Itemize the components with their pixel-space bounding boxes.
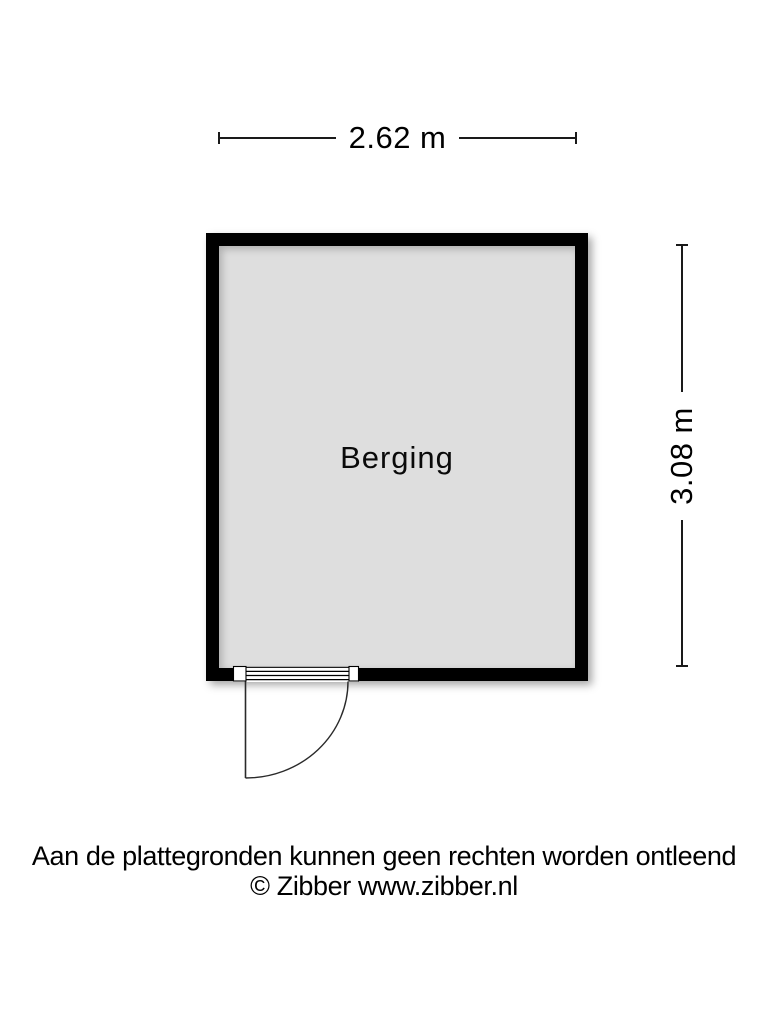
height-dimension-label-wrap: 3.08 m [671,392,693,520]
room-berging: Berging [206,233,588,681]
door [200,655,400,805]
dimension-line-segment [220,137,336,139]
room-label: Berging [340,440,454,476]
dimension-tick-right [575,132,577,144]
footer-copyright: © Zibber www.zibber.nl [0,871,768,901]
height-dimension-label: 3.08 m [664,407,700,505]
width-dimension-label: 2.62 m [336,120,460,156]
footer-disclaimer: Aan de plattegronden kunnen geen rechten… [0,841,768,871]
floorplan-canvas: 2.62 m Berging 3.08 m [0,0,768,1024]
dimension-line-segment [681,520,683,666]
door-jamb-left [234,667,247,682]
door-swing-arc [246,682,349,779]
footer: Aan de plattegronden kunnen geen rechten… [0,841,768,901]
dimension-line-segment [681,246,683,392]
dimension-line-segment [459,137,575,139]
dimension-tick-bottom [676,665,688,667]
door-jamb-right [349,667,359,682]
width-dimension: 2.62 m [218,120,577,156]
height-dimension: 3.08 m [671,244,693,667]
